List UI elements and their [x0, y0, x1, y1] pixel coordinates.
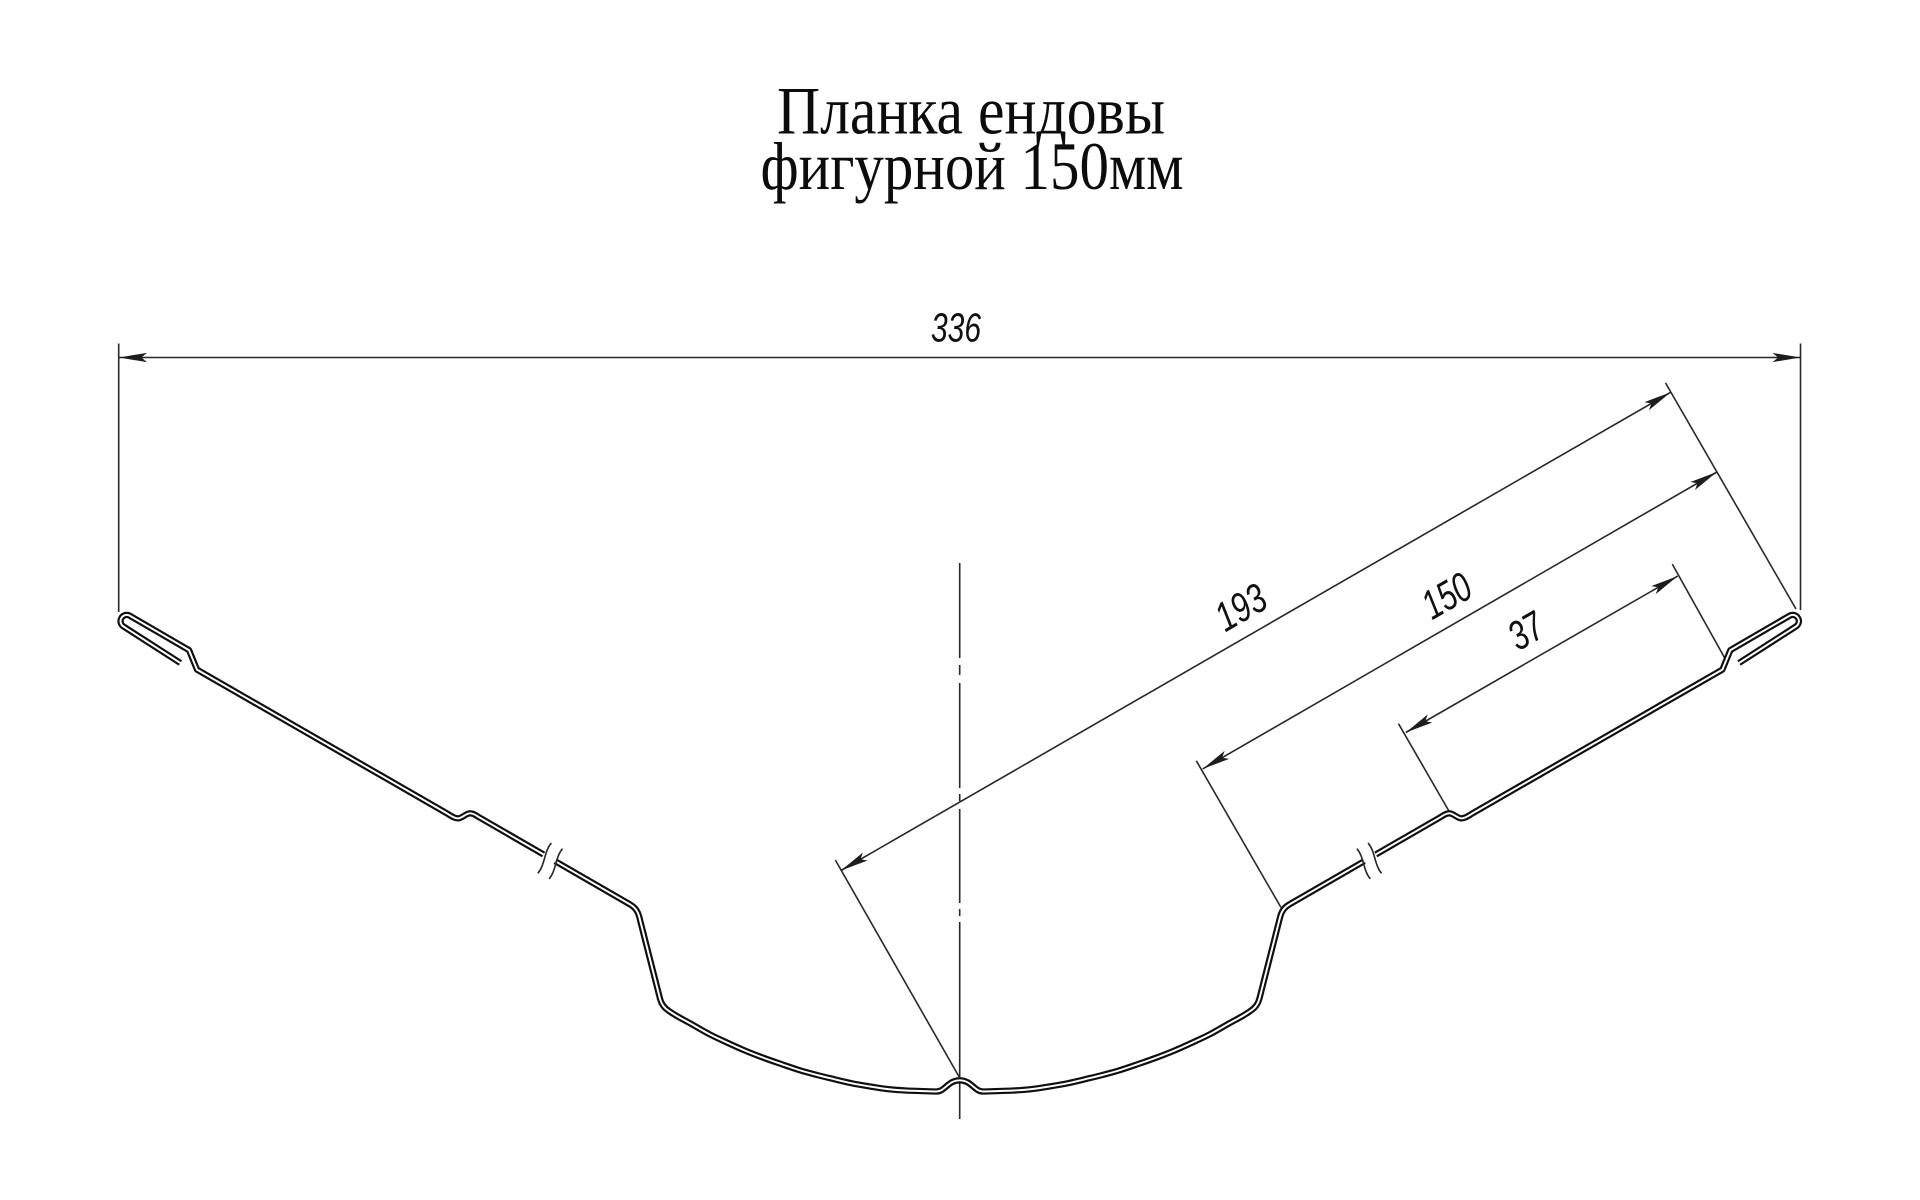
svg-text:336: 336	[931, 305, 981, 351]
svg-text:фигурной 150мм: фигурной 150мм	[761, 128, 1184, 204]
